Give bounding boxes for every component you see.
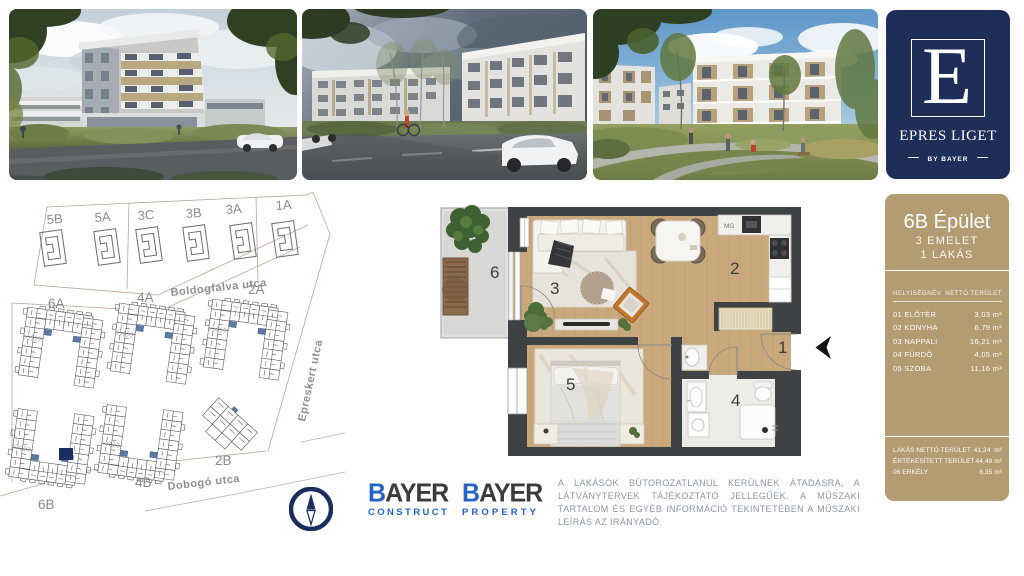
svg-text:1A: 1A: [275, 197, 292, 213]
svg-text:5B: 5B: [46, 211, 63, 227]
svg-text:Epreskert utca: Epreskert utca: [296, 338, 325, 422]
svg-text:2: 2: [730, 259, 739, 278]
svg-text:5A: 5A: [94, 209, 111, 225]
svg-text:←: ←: [686, 397, 693, 404]
svg-text:4A: 4A: [137, 290, 154, 305]
svg-text:2B: 2B: [215, 453, 232, 468]
svg-text:1: 1: [778, 338, 787, 357]
svg-text:3A: 3A: [225, 201, 242, 217]
svg-text:6A: 6A: [48, 296, 65, 311]
svg-text:6: 6: [490, 263, 499, 282]
svg-text:6B: 6B: [38, 497, 55, 512]
svg-text:3: 3: [550, 279, 559, 298]
svg-text:3B: 3B: [185, 205, 202, 221]
svg-text:4: 4: [731, 391, 740, 410]
svg-text:MG: MG: [724, 223, 734, 230]
svg-text:Dobogó utca: Dobogó utca: [167, 473, 241, 493]
svg-text:5: 5: [566, 375, 575, 394]
svg-text:4B: 4B: [135, 475, 152, 490]
svg-text:3C: 3C: [137, 207, 155, 223]
